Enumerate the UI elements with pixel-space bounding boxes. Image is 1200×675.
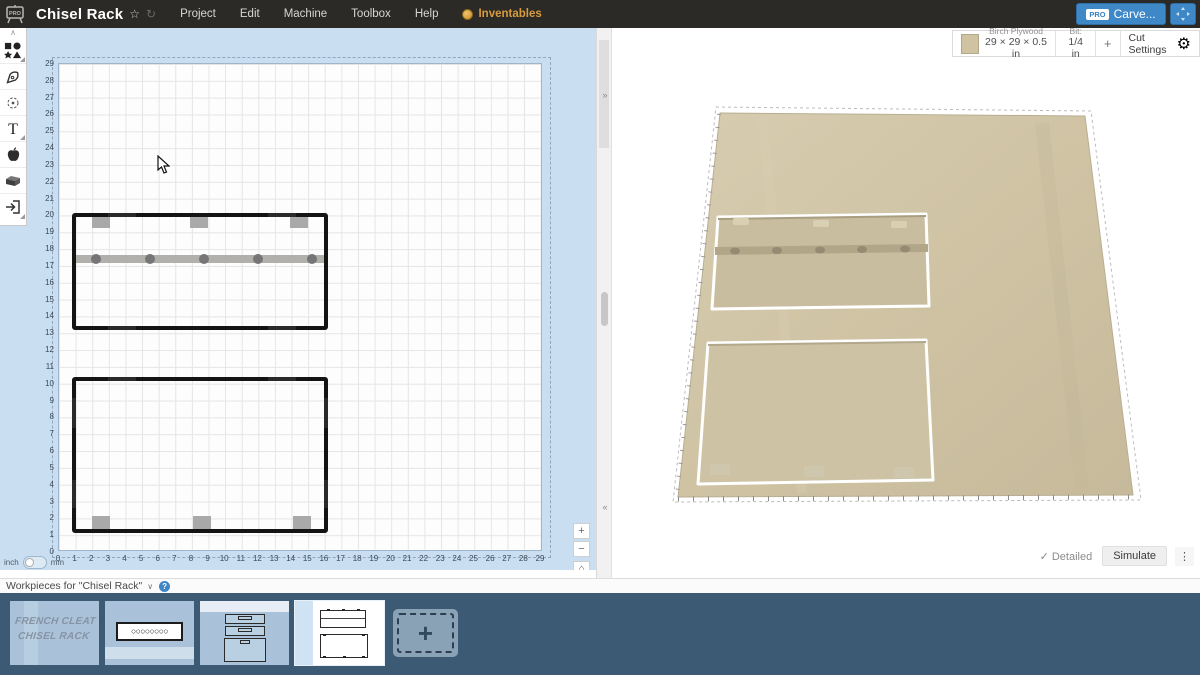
menu-inventables[interactable]: Inventables [462,8,541,20]
check-icon: ✓ [1040,551,1049,563]
tab-slot [193,516,211,529]
material-swatch [961,34,979,54]
toggle-knob [25,558,34,567]
drill-hole [199,254,209,264]
home-view-button[interactable]: ⌂ [573,561,590,570]
tab-mark [72,398,76,428]
text-icon: T [5,120,21,137]
workpieces-tray: FRENCH CLEAT CHISEL RACK ○○○○○○○○ [0,593,1200,675]
sync-icon: ↻ [146,7,156,21]
workpiece-tile-3[interactable] [200,601,289,665]
apps-tool-button[interactable] [0,142,26,168]
tab-slot [190,217,208,228]
tab-slot [92,516,110,529]
bit-value: 1/4 in [1064,36,1086,60]
favorite-star-icon[interactable]: ☆ [129,7,140,21]
tab-mark [324,480,328,508]
zoom-in-button[interactable]: + [573,523,590,539]
menu-edit[interactable]: Edit [240,8,260,20]
chevron-down-icon[interactable]: ∨ [147,582,153,591]
easel-logo-icon[interactable]: PRO [2,1,28,27]
drill-hole [91,254,101,264]
drill-hole [145,254,155,264]
plus-icon: + [393,609,458,657]
svg-text:PRO: PRO [9,11,22,17]
scallop-row: ○○○○○○○○ [116,622,183,641]
text-tool-button[interactable]: T [0,116,26,142]
apple-icon [5,146,22,163]
add-workpiece-button[interactable]: + [393,609,458,657]
four-arrows-icon [1176,7,1190,21]
bit-label: Bit: [1064,27,1086,37]
pro-badge: PRO [1086,9,1108,20]
preview-3d-panel[interactable]: Birch Plywood 29 × 29 × 0.5 in Bit: 1/4 … [612,28,1200,578]
workpiece-tile-2[interactable]: ○○○○○○○○ [105,601,194,665]
bit-selector[interactable]: Bit: 1/4 in [1055,31,1094,56]
workpiece-tile-1[interactable]: FRENCH CLEAT CHISEL RACK [10,601,99,665]
tab-mark [268,377,296,381]
import-icon [5,199,21,215]
drill-hole [253,254,263,264]
menu-toolbox[interactable]: Toolbox [351,8,391,20]
simulate-button[interactable]: Simulate [1102,546,1167,566]
workpieces-label: Workpieces for "Chisel Rack" [6,580,142,592]
panel-divider[interactable]: » « [596,28,612,578]
tab-mark [72,480,76,508]
workpieces-header: Workpieces for "Chisel Rack" ∨ ? [0,578,1200,593]
top-menu-bar: PRO Chisel Rack ☆ ↻ Project Edit Machine… [0,0,1200,28]
unit-mm-label: mm [51,558,64,567]
tab-mark [268,326,296,330]
pen-nib-icon [5,69,21,85]
tile1-text-line2: CHISEL RACK [10,630,99,645]
menu-help[interactable]: Help [415,8,439,20]
expand-right-icon[interactable]: » [597,90,613,100]
shape-shelf-panel[interactable] [72,213,328,330]
svg-text:T: T [8,121,18,137]
box-icon [4,173,22,188]
machine-jog-button[interactable] [1170,3,1196,25]
tile1-text-line1: FRENCH CLEAT [10,615,99,630]
carve-button[interactable]: PRO Carve... [1076,3,1166,25]
tab-mark [324,398,328,428]
design-canvas[interactable]: 0123456789101112131415161718192021222324… [0,28,596,570]
shapes-tool-button[interactable] [0,38,26,64]
material-name: Birch Plywood [985,27,1048,37]
tab-mark [108,377,136,381]
tab-slot [293,516,311,529]
tab-slot [290,217,308,228]
stock-preview-render [612,28,1200,578]
tool-palette: ∧ T [0,28,27,226]
collapse-left-icon[interactable]: « [597,502,613,512]
more-options-button[interactable]: ⋮ [1175,547,1194,566]
pen-tool-button[interactable] [0,64,26,90]
menu-machine[interactable]: Machine [284,8,327,20]
zoom-out-button[interactable]: − [573,541,590,557]
crosshair-icon [5,95,21,111]
tab-slot [92,217,110,228]
menu-project[interactable]: Project [180,8,216,20]
divider-drag-handle[interactable] [601,292,608,326]
material-tool-button[interactable] [0,168,26,194]
project-title[interactable]: Chisel Rack [36,6,123,23]
shape-back-panel[interactable] [72,377,328,533]
inventables-coin-icon [462,9,473,20]
unit-inch-label: inch [4,558,19,567]
tab-mark [108,326,136,330]
detailed-toggle[interactable]: ✓ Detailed [1040,550,1093,563]
drill-hole [307,254,317,264]
cut-settings-button[interactable]: Cut Settings ⚙ [1120,31,1200,56]
help-icon[interactable]: ? [159,581,170,592]
workpiece-tile-4-selected[interactable] [295,601,384,665]
material-dimensions: 29 × 29 × 0.5 in [985,36,1048,60]
origin-tool-button[interactable] [0,90,26,116]
add-bit-button[interactable]: + [1095,31,1120,56]
tab-mark [108,213,136,217]
import-tool-button[interactable] [0,194,26,220]
material-selector[interactable]: Birch Plywood 29 × 29 × 0.5 in [953,31,1055,56]
unit-toggle[interactable] [23,556,47,569]
toolbar-collapse-icon[interactable]: ∧ [0,28,26,38]
material-settings-bar: Birch Plywood 29 × 29 × 0.5 in Bit: 1/4 … [952,30,1200,57]
gear-icon: ⚙ [1177,34,1191,54]
